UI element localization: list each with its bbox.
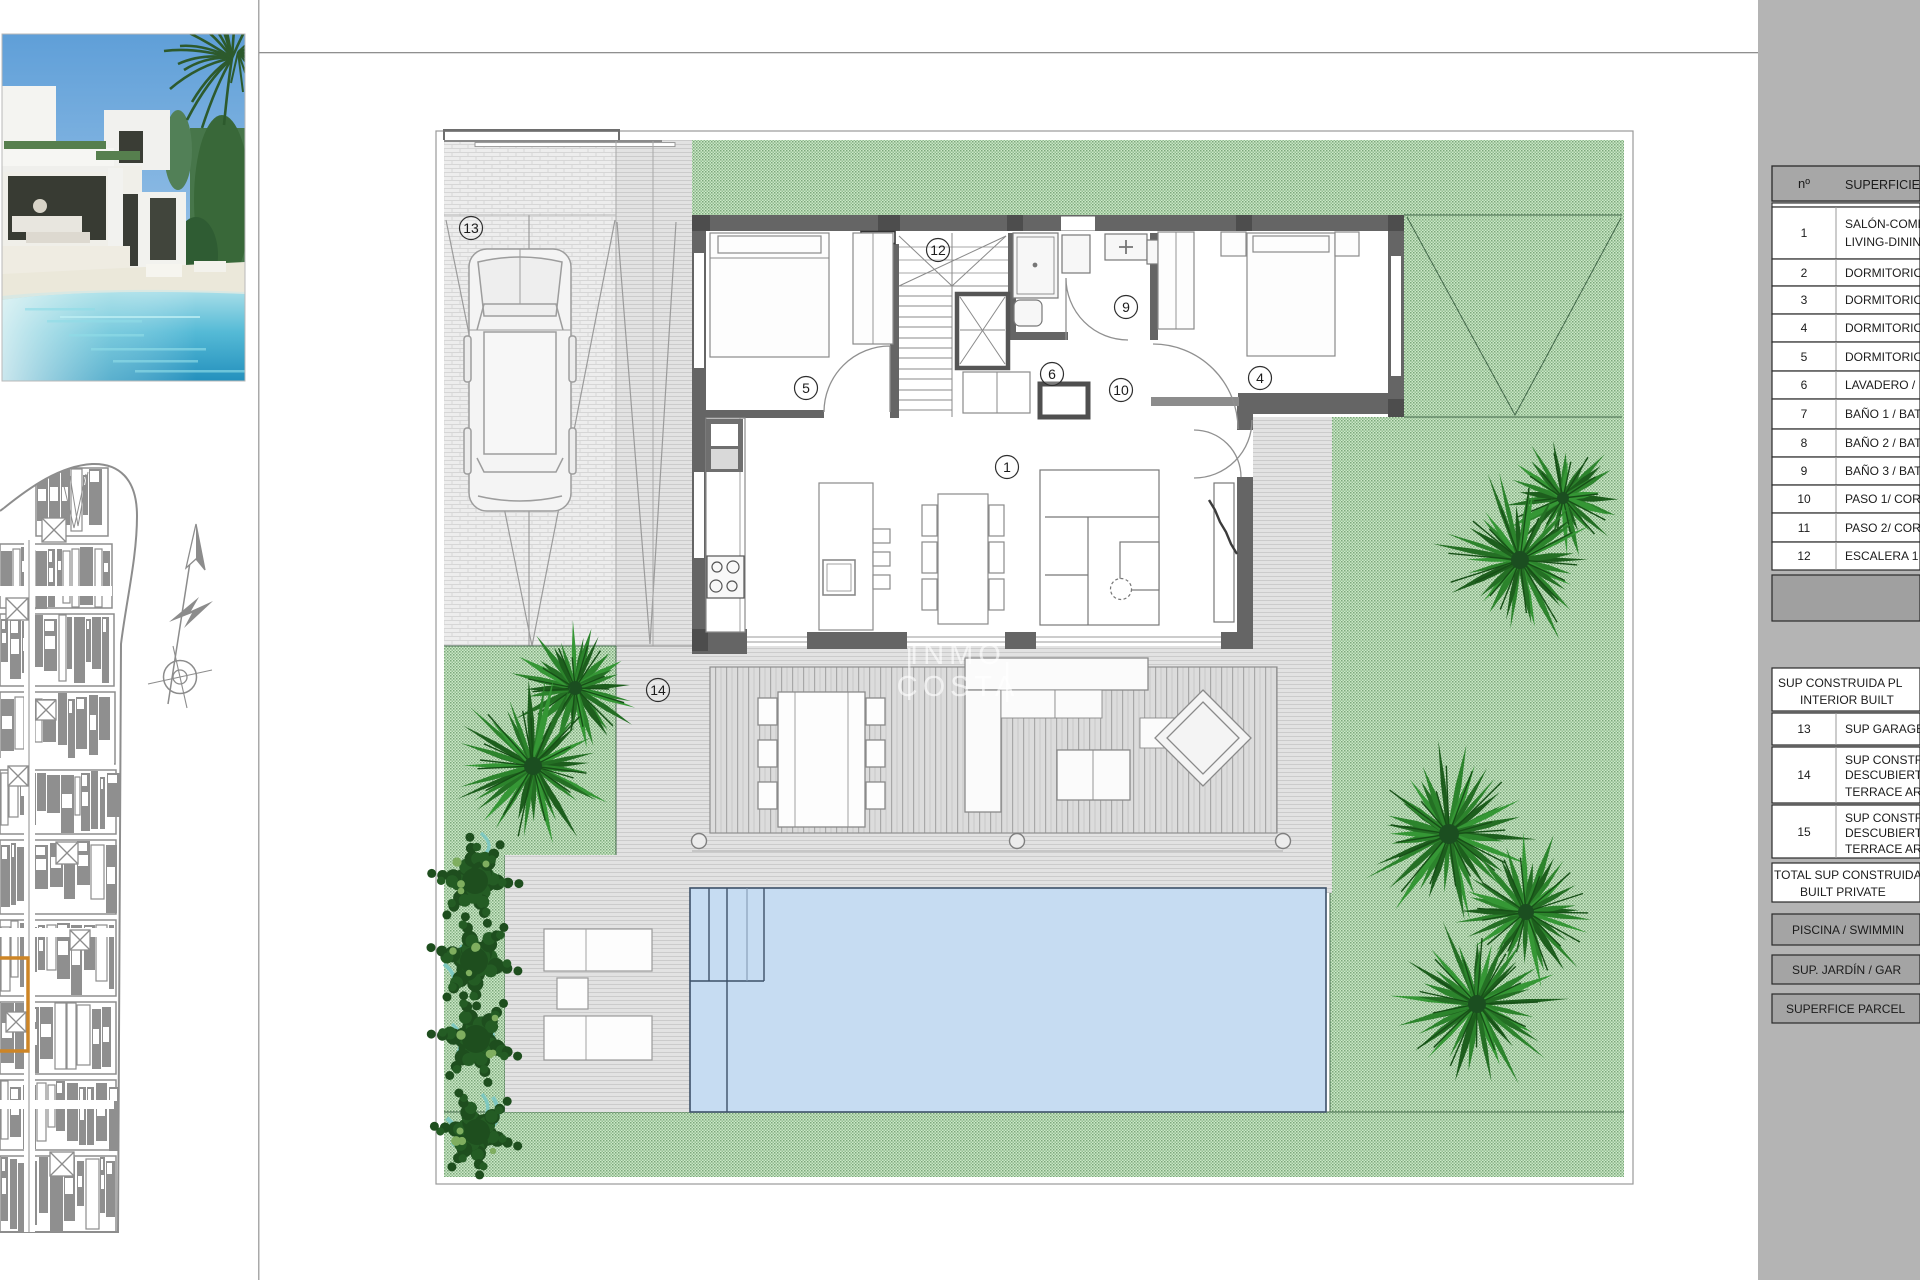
svg-text:2: 2 — [1801, 266, 1808, 280]
svg-text:TOTAL SUP CONSTRUIDA: TOTAL SUP CONSTRUIDA — [1774, 868, 1920, 882]
svg-text:DORMITORIO 2 / BED: DORMITORIO 2 / BED — [1845, 266, 1920, 280]
svg-text:10: 10 — [1113, 382, 1129, 398]
svg-text:nº: nº — [1798, 176, 1810, 191]
svg-text:PISCINA / SWIMMIN: PISCINA / SWIMMIN — [1792, 923, 1904, 937]
svg-text:INMO: INMO — [910, 639, 1006, 671]
svg-text:BAÑO 1 / BATHROOM: BAÑO 1 / BATHROOM — [1845, 407, 1920, 421]
svg-text:ESCALERA 1 / STAIRS: ESCALERA 1 / STAIRS — [1845, 549, 1920, 563]
svg-text:4: 4 — [1801, 321, 1808, 335]
svg-text:15: 15 — [1797, 825, 1811, 839]
svg-text:6: 6 — [1048, 366, 1056, 382]
svg-text:PASO 2/ CORRIDOR 2: PASO 2/ CORRIDOR 2 — [1845, 521, 1920, 535]
svg-text:SALÓN-COMEDOR / C: SALÓN-COMEDOR / C — [1845, 216, 1920, 231]
svg-text:5: 5 — [1801, 350, 1808, 364]
svg-text:12: 12 — [1797, 549, 1811, 563]
svg-text:INTERIOR BUILT: INTERIOR BUILT — [1800, 693, 1894, 707]
svg-text:14: 14 — [650, 682, 666, 698]
svg-text:COSTA: COSTA — [897, 671, 1020, 703]
svg-text:1: 1 — [1003, 459, 1011, 475]
svg-text:6: 6 — [1801, 378, 1808, 392]
svg-text:8: 8 — [1801, 436, 1808, 450]
svg-text:7: 7 — [1801, 407, 1808, 421]
svg-text:LAVADERO / LAUNDR: LAVADERO / LAUNDR — [1845, 378, 1920, 392]
svg-text:TERRACE AREA 1: TERRACE AREA 1 — [1845, 785, 1920, 799]
svg-text:BAÑO 2 / BATHROOM: BAÑO 2 / BATHROOM — [1845, 436, 1920, 450]
svg-text:SUP. JARDÍN / GAR: SUP. JARDÍN / GAR — [1792, 962, 1901, 977]
svg-text:9: 9 — [1801, 464, 1808, 478]
svg-text:5: 5 — [802, 380, 810, 396]
svg-text:TERRACE AREA 2: TERRACE AREA 2 — [1845, 842, 1920, 856]
svg-text:SUP CONSTRUIDA: SUP CONSTRUIDA — [1845, 811, 1920, 825]
svg-text:PASO 1/ CORRIDOR 1: PASO 1/ CORRIDOR 1 — [1845, 492, 1920, 506]
svg-text:4: 4 — [1256, 370, 1264, 386]
svg-text:SUPERFICIE ÚTIL: SUPERFICIE ÚTIL — [1845, 177, 1920, 192]
svg-text:SUP GARAGE / GAR: SUP GARAGE / GAR — [1845, 722, 1920, 736]
svg-text:9: 9 — [1122, 299, 1130, 315]
svg-text:DORMITORIO 5 / BED: DORMITORIO 5 / BED — [1845, 350, 1920, 364]
svg-text:3: 3 — [1801, 293, 1808, 307]
svg-text:13: 13 — [1797, 722, 1811, 736]
svg-text:SUP CONSTRUIDA: SUP CONSTRUIDA — [1845, 753, 1920, 767]
svg-text:12: 12 — [930, 242, 946, 258]
svg-text:DESCUBIERTA / N: DESCUBIERTA / N — [1845, 826, 1920, 840]
svg-text:DORMITORIO 4 / BED: DORMITORIO 4 / BED — [1845, 321, 1920, 335]
svg-text:10: 10 — [1797, 492, 1811, 506]
svg-text:DESCUBIERTA / N: DESCUBIERTA / N — [1845, 768, 1920, 782]
svg-text:SUP CONSTRUIDA PL: SUP CONSTRUIDA PL — [1778, 676, 1903, 690]
svg-text:1: 1 — [1801, 226, 1808, 240]
svg-text:DORMITORIO 3 / BED: DORMITORIO 3 / BED — [1845, 293, 1920, 307]
svg-text:LIVING-DINING ROOM: LIVING-DINING ROOM — [1845, 235, 1920, 249]
svg-text:BUILT PRIVATE: BUILT PRIVATE — [1800, 885, 1886, 899]
svg-text:14: 14 — [1797, 768, 1811, 782]
svg-text:SUPERFICE PARCEL: SUPERFICE PARCEL — [1786, 1002, 1905, 1016]
svg-text:BAÑO 3 / BATHROOM: BAÑO 3 / BATHROOM — [1845, 464, 1920, 478]
svg-text:13: 13 — [463, 220, 479, 236]
svg-text:11: 11 — [1798, 521, 1811, 535]
